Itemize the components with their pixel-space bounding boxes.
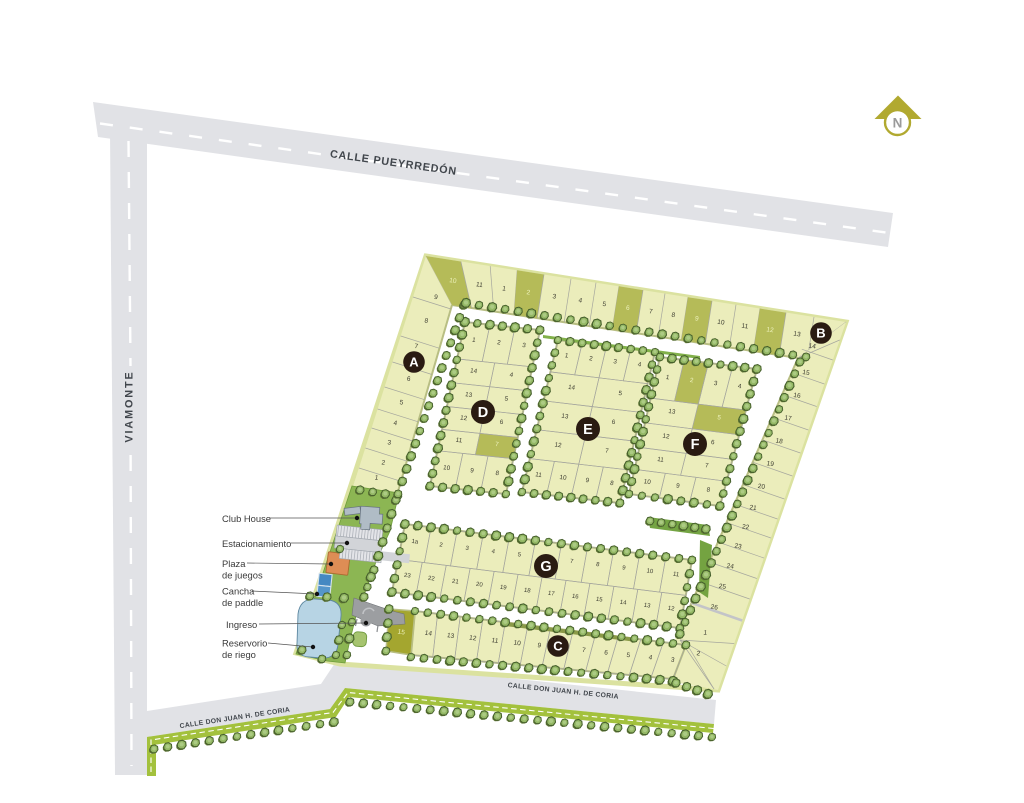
svg-text:E: E — [583, 422, 593, 438]
svg-text:10: 10 — [449, 277, 458, 285]
svg-text:G: G — [540, 559, 551, 575]
svg-text:14: 14 — [424, 630, 433, 638]
svg-text:D: D — [478, 405, 488, 421]
svg-text:19: 19 — [766, 460, 775, 468]
svg-text:B: B — [816, 326, 825, 341]
svg-text:17: 17 — [784, 415, 793, 423]
svg-text:18: 18 — [775, 437, 784, 445]
svg-text:Plaza: Plaza — [222, 558, 246, 569]
svg-text:Club House: Club House — [222, 513, 271, 524]
svg-text:A: A — [409, 355, 419, 370]
svg-text:12: 12 — [469, 634, 478, 642]
svg-text:15: 15 — [397, 628, 406, 636]
svg-text:22: 22 — [741, 523, 750, 531]
svg-text:26: 26 — [710, 604, 719, 612]
svg-text:de paddle: de paddle — [222, 597, 263, 608]
svg-text:13: 13 — [793, 330, 802, 338]
svg-text:de riego: de riego — [222, 649, 256, 660]
svg-text:15: 15 — [802, 369, 811, 377]
svg-text:VIAMONTE: VIAMONTE — [124, 370, 136, 442]
svg-text:N: N — [893, 116, 903, 131]
svg-text:21: 21 — [749, 504, 758, 512]
svg-text:F: F — [691, 437, 700, 453]
svg-text:10: 10 — [717, 319, 726, 327]
svg-text:23: 23 — [734, 543, 743, 551]
svg-text:20: 20 — [757, 483, 766, 491]
svg-text:13: 13 — [446, 632, 455, 640]
svg-text:10: 10 — [513, 639, 522, 647]
svg-text:Ingreso: Ingreso — [226, 619, 257, 630]
svg-text:16: 16 — [793, 392, 802, 400]
svg-text:12: 12 — [766, 326, 775, 334]
svg-text:Cancha: Cancha — [222, 586, 255, 597]
svg-text:14: 14 — [808, 343, 817, 351]
svg-text:Reservorio: Reservorio — [222, 638, 267, 649]
svg-text:Estacionamiento: Estacionamiento — [222, 538, 291, 549]
svg-text:de juegos: de juegos — [222, 570, 263, 581]
svg-text:C: C — [553, 639, 563, 654]
svg-text:24: 24 — [726, 563, 735, 571]
svg-text:25: 25 — [718, 583, 727, 591]
